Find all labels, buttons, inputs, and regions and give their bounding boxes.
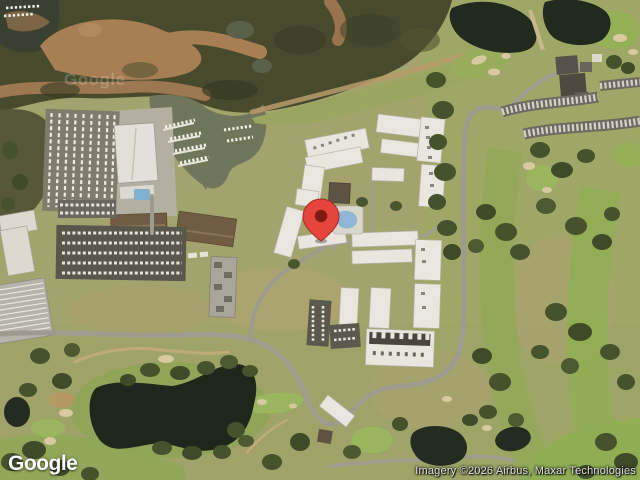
pavilion [328, 182, 350, 203]
imagery-attribution: Imagery ©2026 Airbus, Maxar Technologies [415, 465, 636, 477]
pin-dot [315, 210, 327, 222]
google-logo[interactable]: Google [8, 452, 77, 476]
south-building [365, 329, 434, 367]
satellite-map[interactable]: Google Google Imagery ©2026 Airbus, Maxa… [0, 0, 640, 480]
marina-pool [134, 189, 150, 200]
satellite-imagery [0, 0, 640, 480]
